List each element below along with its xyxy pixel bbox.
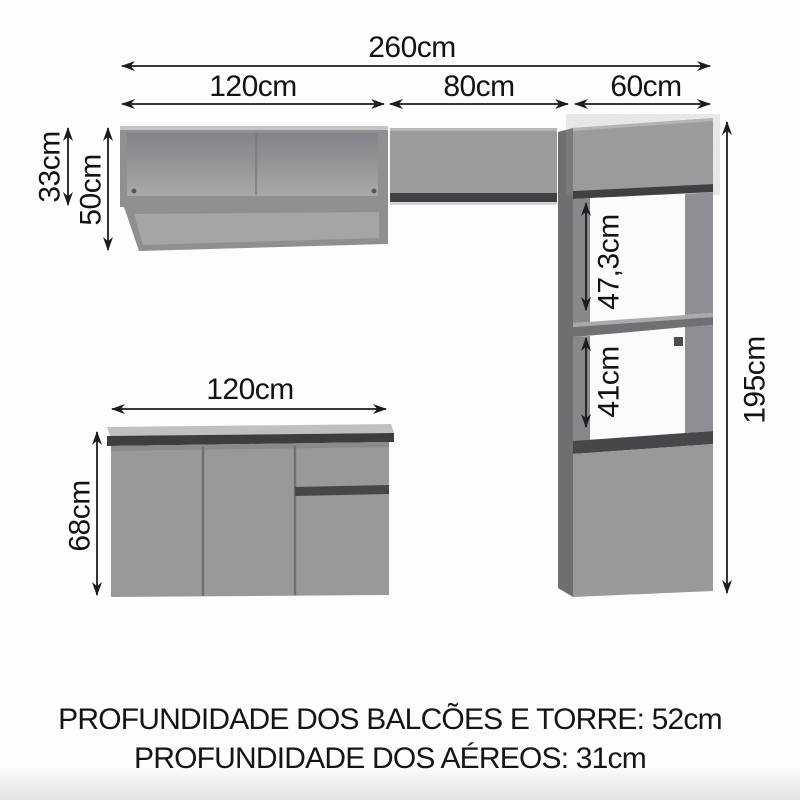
counter-body [111, 442, 389, 597]
dim-label-tower-195: 195cm [739, 336, 772, 424]
dim-label-niche-47: 47,3cm [593, 214, 626, 309]
cabinet-top-edge [120, 126, 388, 130]
tower-side-panel [558, 128, 573, 597]
dim-label-seg-120: 120cm [209, 70, 297, 103]
hinge-pin-right [372, 189, 377, 194]
cabinet-top-edge [390, 128, 557, 131]
cabinet-underside [390, 202, 557, 205]
footer-depth-counters: PROFUNDIDADE DOS BALCÕES E TORRE: 52cm [58, 702, 722, 736]
tower-cabinet [558, 118, 713, 597]
dim-label-counter-120: 120cm [206, 373, 294, 406]
dim-label-aereo-50: 50cm [75, 154, 108, 225]
cabinet-open-interior [127, 133, 378, 196]
niche-lower-left-stile [573, 336, 590, 442]
furniture-dimension-diagram: 260cm 120cm 80cm 60cm 33cm 50cm 47,3cm 4… [0, 0, 800, 800]
dim-label-total-260: 260cm [368, 31, 456, 64]
dim-label-seg-80: 80cm [443, 70, 514, 103]
diagram-canvas: 260cm 120cm 80cm 60cm 33cm 50cm 47,3cm 4… [0, 0, 800, 800]
cabinet-bottom-edge [390, 193, 557, 202]
interior-divider [255, 134, 257, 195]
dim-label-counter-68: 68cm [64, 480, 97, 551]
door-handle [674, 337, 683, 346]
base-cabinet [107, 424, 394, 597]
wall-cabinet-middle [390, 128, 557, 205]
niche-upper-left-stile [573, 198, 590, 323]
niche-upper-back-panel [685, 192, 713, 315]
dim-label-niche-41: 41cm [593, 346, 626, 417]
wall-cabinet-left [120, 126, 388, 251]
dim-label-aereo-33: 33cm [34, 131, 67, 202]
tower-lower-door [573, 444, 713, 597]
footer-depth-aereos: PROFUNDIDADE DOS AÉREOS: 31cm [134, 742, 646, 775]
hinge-pin-left [132, 189, 137, 194]
cabinet-door [390, 128, 557, 195]
dim-label-seg-60: 60cm [610, 70, 681, 103]
niche-lower-back-panel [685, 325, 713, 433]
